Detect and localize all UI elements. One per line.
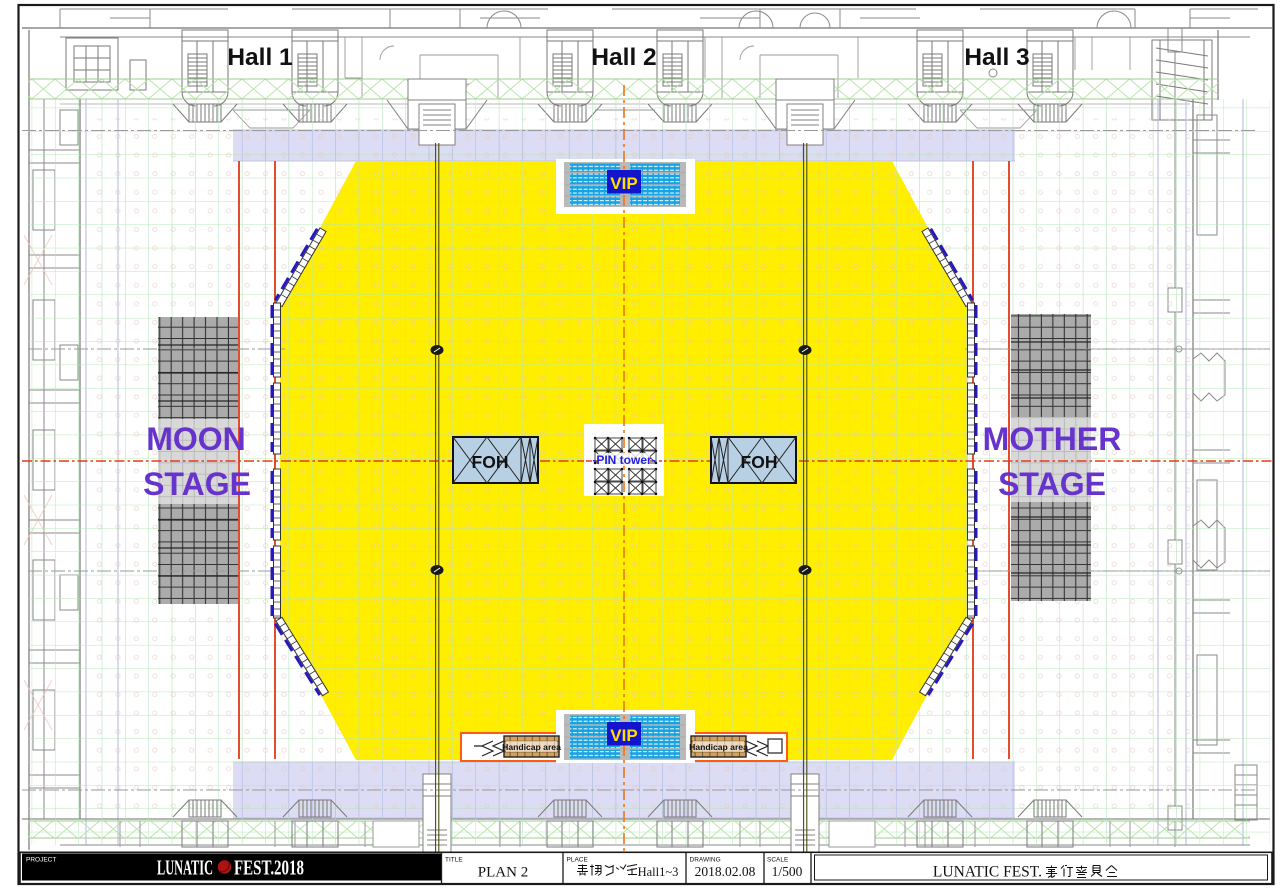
svg-text:LUNATIC: LUNATIC xyxy=(157,856,213,880)
svg-text:Hall 3: Hall 3 xyxy=(964,44,1029,71)
svg-text:1/500: 1/500 xyxy=(772,864,803,879)
svg-text:STAGE: STAGE xyxy=(143,466,251,502)
svg-text:Hall 1: Hall 1 xyxy=(227,44,292,71)
svg-text:PROJECT: PROJECT xyxy=(26,857,56,864)
svg-text:Hall 2: Hall 2 xyxy=(591,44,656,71)
svg-text:VIP: VIP xyxy=(610,174,637,193)
svg-text:MOTHER: MOTHER xyxy=(983,421,1122,457)
svg-text:FOH: FOH xyxy=(472,452,509,472)
svg-text:STAGE: STAGE xyxy=(998,466,1106,502)
svg-text:VIP: VIP xyxy=(610,726,637,745)
svg-text:LUNATIC FEST.: LUNATIC FEST. xyxy=(933,864,1042,881)
svg-text:SCALE: SCALE xyxy=(767,857,789,864)
svg-text:FOH: FOH xyxy=(741,452,778,472)
svg-text:Handicap area: Handicap area xyxy=(502,742,561,752)
svg-text:TITLE: TITLE xyxy=(445,857,463,864)
svg-text:Hall1~3: Hall1~3 xyxy=(638,865,679,879)
svg-text:FEST.2018: FEST.2018 xyxy=(234,856,304,880)
svg-text:2018.02.08: 2018.02.08 xyxy=(695,864,756,879)
svg-text:MOON: MOON xyxy=(146,421,246,457)
svg-text:DRAWING: DRAWING xyxy=(690,857,721,864)
svg-text:Handicap area: Handicap area xyxy=(689,742,748,752)
svg-text:PLACE: PLACE xyxy=(567,857,589,864)
svg-text:PLAN 2: PLAN 2 xyxy=(478,865,528,881)
svg-text:-PIN tower-: -PIN tower- xyxy=(592,453,655,467)
